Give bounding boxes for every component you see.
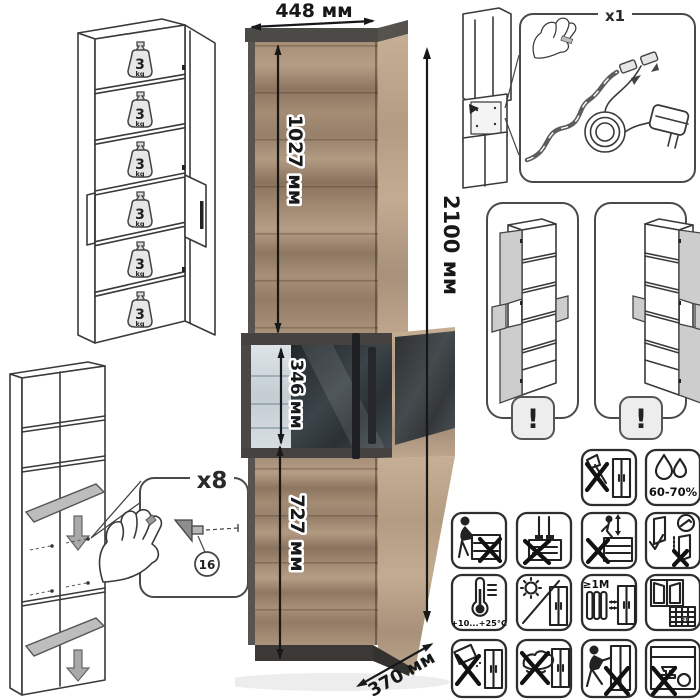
display-dimension: 346 мм bbox=[286, 359, 306, 428]
no-sharp-tools-icon bbox=[582, 450, 636, 505]
lower-door-handle bbox=[368, 347, 376, 444]
humidity-value: 60-70% bbox=[649, 485, 698, 499]
display-glass-left bbox=[251, 345, 291, 448]
shelf-pin-assembly-diagram: x8 16 bbox=[0, 350, 260, 700]
cabinet-rear-view bbox=[463, 8, 511, 188]
led-kit-diagram: x1 bbox=[455, 0, 700, 195]
cabinet-top bbox=[245, 28, 378, 42]
plinth bbox=[255, 645, 373, 661]
lower-door-dimension: 727 мм bbox=[286, 494, 308, 571]
ventilation-icon: 21 bbox=[646, 575, 700, 630]
radiator-distance-icon: ≥1М bbox=[582, 575, 636, 630]
pin-part-number: 16 bbox=[199, 558, 216, 572]
care-icons-grid: 60-70% bbox=[440, 440, 700, 700]
upper-door-dimension: 1027 мм bbox=[284, 115, 306, 206]
door-adjustment-icon bbox=[646, 513, 700, 568]
no-sitting-icon bbox=[452, 513, 506, 568]
radiator-distance: ≥1М bbox=[583, 579, 610, 591]
door-variants-diagram: ! bbox=[470, 195, 700, 455]
middle-door-handle bbox=[200, 201, 204, 229]
no-dragging-icon bbox=[582, 640, 636, 697]
humidity-icon: 60-70% bbox=[646, 450, 700, 505]
height-dimension: 2100 мм bbox=[439, 195, 463, 295]
upper-door-handle bbox=[352, 333, 360, 459]
shelf-load-diagram: 3 kg bbox=[40, 5, 225, 350]
pin-detail-panel bbox=[140, 478, 248, 597]
warning-badge-left bbox=[512, 397, 554, 439]
no-sunlight-icon bbox=[517, 575, 571, 630]
width-dimension: 448 мм bbox=[275, 0, 352, 22]
no-heavy-objects-icon bbox=[646, 640, 700, 697]
temperature-range: +10...+25°C bbox=[451, 618, 507, 628]
no-abrasives-icon bbox=[452, 640, 506, 697]
airing-day: 21 bbox=[682, 618, 688, 624]
no-standing-icon bbox=[517, 513, 571, 568]
pin-qty-label: x8 bbox=[197, 468, 228, 494]
no-climbing-icon bbox=[582, 513, 636, 568]
temperature-icon: +10...+25°C bbox=[451, 575, 507, 630]
cabinet-side-upper bbox=[378, 34, 408, 335]
no-wet-cleaning-icon bbox=[517, 640, 571, 697]
warning-badge-right bbox=[620, 397, 662, 439]
cabinet-dimensions-view: 448 мм 1027 мм 346 мм 727 мм 2100 мм 370… bbox=[235, 0, 470, 700]
instruction-sheet: 3 kg bbox=[0, 0, 700, 700]
led-kit-qty: x1 bbox=[605, 7, 625, 25]
